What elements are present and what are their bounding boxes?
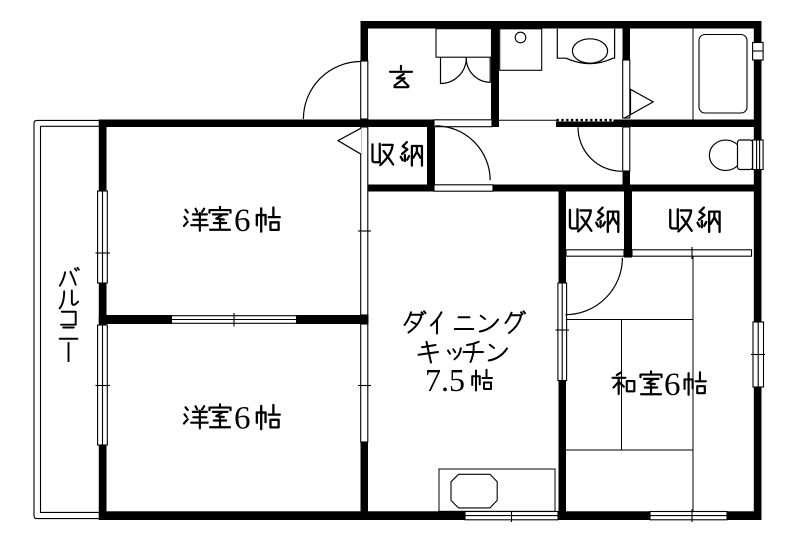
svg-text:6: 6	[234, 203, 251, 239]
svg-text:6: 6	[234, 401, 251, 437]
svg-text:7.5: 7.5	[425, 362, 465, 398]
svg-text:6: 6	[664, 367, 681, 403]
